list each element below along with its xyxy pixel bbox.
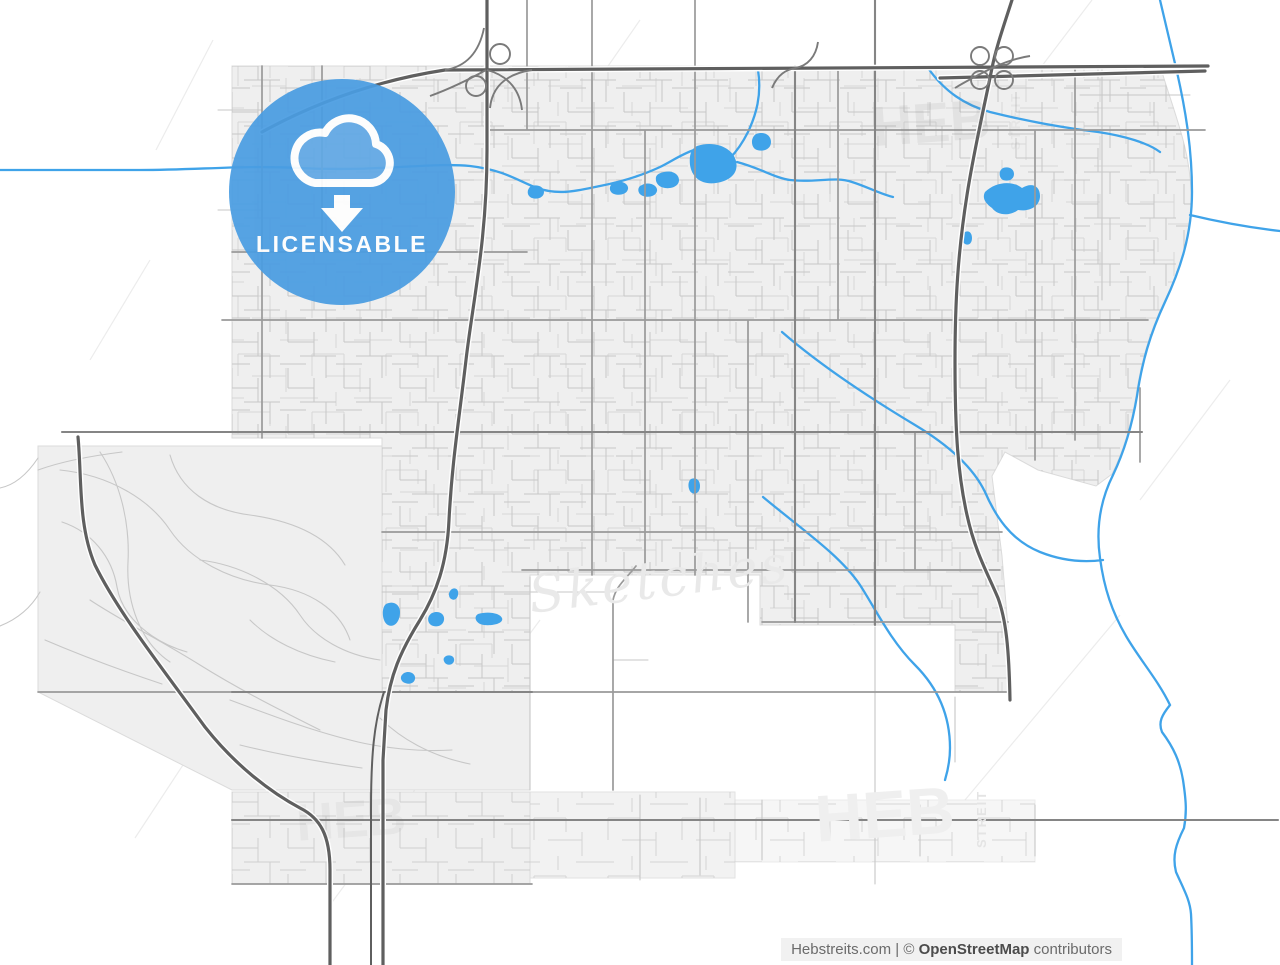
city-map[interactable] <box>0 0 1280 965</box>
licensable-badge[interactable]: LICENSABLE <box>229 79 455 305</box>
attribution-suffix: contributors <box>1034 941 1112 958</box>
attribution-separator: | <box>895 941 899 958</box>
map-attribution: Hebstreits.com | © OpenStreetMap contrib… <box>781 938 1122 961</box>
attribution-site: Hebstreits.com <box>791 941 891 958</box>
attribution-copyright: © <box>903 941 914 958</box>
map-canvas: Sketches HEB STREIT HEB HEB STREIT LICEN… <box>0 0 1280 965</box>
attribution-osm: OpenStreetMap <box>919 941 1030 958</box>
cloud-download-icon <box>277 95 407 245</box>
badge-label: LICENSABLE <box>229 231 455 258</box>
